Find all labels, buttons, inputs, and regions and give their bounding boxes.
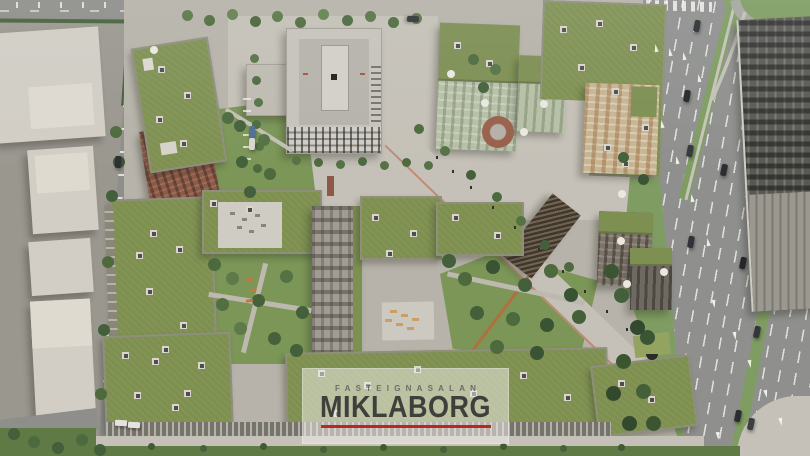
warehouse-building — [30, 299, 96, 420]
tree-row-top — [182, 10, 193, 21]
watermark-brand: MIKLABORG — [320, 391, 491, 424]
courtyard-trees — [442, 254, 456, 268]
car — [115, 156, 122, 168]
brick-chimney — [327, 176, 334, 196]
tower-east-facade — [371, 66, 381, 122]
parked-car — [249, 138, 255, 150]
inner-wing-building — [312, 206, 362, 366]
green-roof-cap — [599, 211, 654, 235]
warehouse-building — [28, 238, 94, 296]
tower-south-facade — [287, 127, 381, 153]
rooftop-penthouse — [321, 45, 349, 111]
trees-sw-corner — [8, 428, 20, 440]
plaza-trees — [250, 54, 259, 63]
green-roof-wing — [360, 196, 442, 260]
office-tower — [286, 28, 382, 154]
parked-van — [115, 420, 127, 427]
roof-marking — [303, 73, 308, 75]
courtyard-trees — [222, 112, 234, 124]
street-trees-south — [148, 443, 155, 450]
warehouse-building — [27, 146, 99, 234]
circular-plaza-feature — [482, 116, 514, 148]
green-roof-wing — [436, 202, 524, 256]
green-roof-patch — [630, 86, 657, 117]
street-trees — [110, 126, 122, 138]
parked-car — [249, 126, 255, 138]
apartment-tower — [630, 248, 672, 310]
garden-trees-ne — [468, 54, 479, 65]
roof-terrace — [382, 302, 435, 341]
plaza-trees — [292, 156, 301, 165]
watermark: FASTEIGNASALAN MIKLABORG — [302, 368, 509, 444]
watermark-underline — [321, 425, 491, 428]
parked-van — [128, 422, 140, 429]
skylight-glass — [152, 232, 156, 236]
building-lower-facade — [748, 191, 810, 312]
warehouse-building — [0, 26, 106, 143]
boundary-trees — [604, 264, 619, 279]
car — [407, 16, 419, 22]
courtyard-trees — [208, 258, 221, 271]
terrace-loungers — [390, 310, 397, 313]
roof-structure — [160, 141, 178, 155]
green-roof-south-wing — [102, 332, 233, 432]
terrace-furniture — [230, 212, 235, 215]
green-roof-cap — [630, 248, 672, 266]
street-trees-diagonal — [414, 124, 424, 134]
aerial-rendering: FASTEIGNASALAN MIKLABORG — [0, 0, 810, 456]
roof-marking — [360, 73, 365, 75]
roof-terrace — [218, 202, 282, 248]
roof-vent — [331, 74, 337, 80]
beige-apartment-tower — [582, 83, 659, 176]
rooftop-domes — [447, 70, 455, 78]
pedestrians — [436, 156, 438, 159]
roof-structure — [142, 58, 154, 71]
lane-arrow — [716, 432, 721, 440]
grass-strip-south — [90, 446, 740, 456]
